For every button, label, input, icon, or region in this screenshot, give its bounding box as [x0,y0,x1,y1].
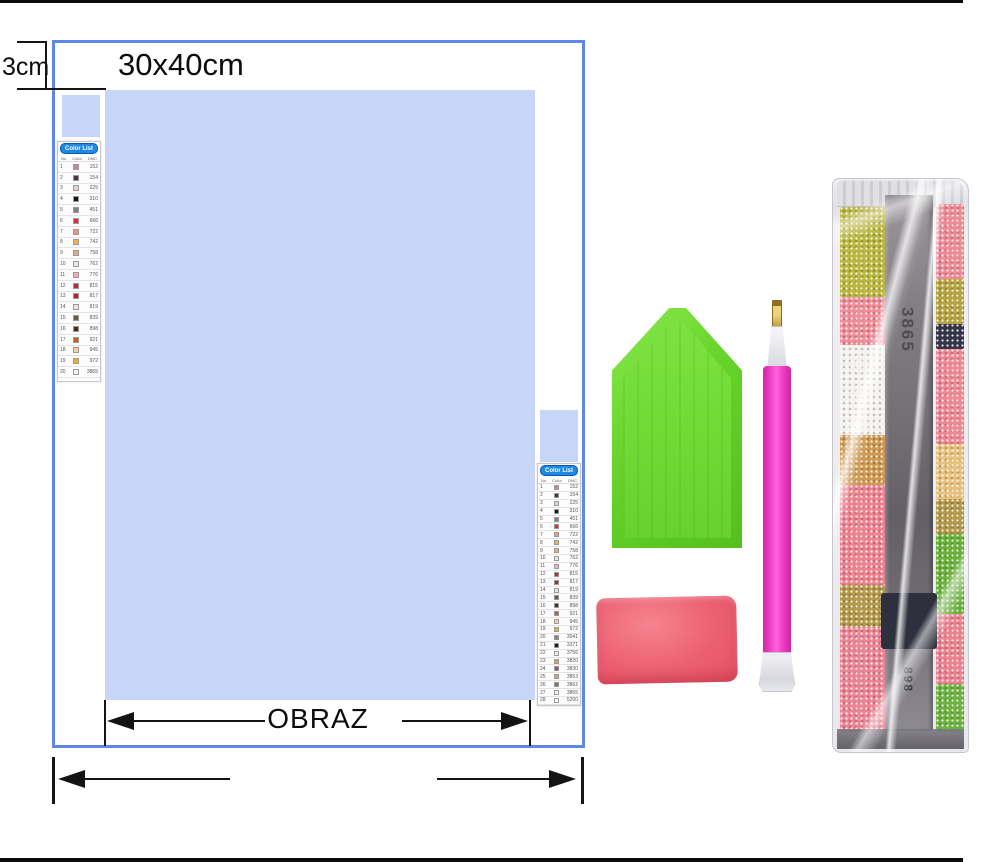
color-list-row: 4 310 [538,508,580,516]
canvas-corner-swatch-right [540,410,578,462]
color-swatch [554,603,559,608]
color-swatch [554,682,559,687]
color-list-row: 12 815 [58,281,100,292]
row-number: 1 [60,164,68,170]
bead-packet-pink [840,297,885,345]
color-swatch [73,239,79,245]
bead-packet-tan [840,435,885,485]
dmc-code: 666 [84,218,98,224]
color-list-rows: 1 152 2 154 3 225 4 [58,162,100,378]
dmc-code: 839 [564,595,578,601]
color-list-row: 1 152 [58,162,100,173]
bead-packet-olive [840,207,885,297]
bead-packet-pink [936,204,964,279]
row-number: 11 [60,272,68,278]
row-number: 15 [60,315,68,321]
color-list-row: 3 225 [538,500,580,508]
color-list-title: Color List [60,143,98,154]
dmc-code: 815 [564,571,578,577]
color-list-row: 17 921 [58,335,100,346]
color-list-row: 10 762 [538,555,580,563]
row-number: 2 [60,175,68,181]
row-number: 5 [540,516,548,522]
color-swatch [554,501,559,506]
row-number: 18 [60,347,68,353]
row-number: 19 [60,358,68,364]
dmc-code: 3371 [564,642,578,648]
color-list-row: 7 722 [538,531,580,539]
margin-size-label: 3cm [2,53,49,82]
color-swatch [554,548,559,553]
dmc-code: 742 [564,540,578,546]
color-swatch [554,690,559,695]
photo-frame-top-line [0,0,963,3]
row-number: 6 [60,218,68,224]
color-swatch [554,540,559,545]
color-list-column-headers: No Color DMC [538,477,580,484]
color-list-rows: 1 152 2 154 3 225 4 [538,484,580,705]
diamond-sorting-tray [612,308,742,548]
diamond-applicator-pen [754,300,800,692]
dmc-code: 3820 [564,658,578,664]
color-list-row: 12 815 [538,571,580,579]
color-list-row: 9 758 [58,248,100,259]
bead-packet-white [840,345,885,435]
arrow-right-icon [549,770,576,788]
measure-end-bar [52,757,55,804]
dmc-code: 758 [84,250,98,256]
row-number: 18 [540,619,548,625]
row-number: 16 [60,326,68,332]
color-list-row: 17 921 [538,610,580,618]
row-number: 28 [540,697,548,703]
canvas-size-label: 30x40cm [118,47,244,83]
color-swatch [554,493,559,498]
row-number: 6 [540,524,548,530]
color-swatch [73,358,79,364]
measure-end-bar [581,757,584,804]
color-swatch [554,674,559,679]
row-number: 7 [540,532,548,538]
diamond-beads-bag: 3865 898 [832,178,969,753]
color-list-row: 8 742 [58,238,100,249]
color-list-row: 11 776 [58,270,100,281]
bag-dark-fold [881,593,937,649]
row-number: 21 [540,642,548,648]
arrow-right-icon [501,712,528,730]
color-list-row: 9 758 [538,547,580,555]
color-swatch [73,272,79,278]
color-list-row: 27 3865 [538,689,580,697]
color-list-row: 15 839 [58,313,100,324]
color-list-column-headers: No Color DMC [58,155,100,162]
row-number: 3 [540,500,548,506]
color-swatch [554,524,559,529]
dmc-code: 3853 [564,674,578,680]
color-list-row: 2 154 [538,492,580,500]
dmc-code: 762 [84,261,98,267]
color-swatch [554,564,559,569]
color-swatch [73,261,79,267]
color-list-row: 5 451 [58,205,100,216]
dmc-code: 3041 [564,634,578,640]
row-number: 25 [540,674,548,680]
photo-frame-bottom-line [0,858,963,862]
dmc-code: 742 [84,239,98,245]
dmc-code: 722 [564,532,578,538]
dmc-code: 758 [564,548,578,554]
color-swatch [554,627,559,632]
row-number: 8 [60,239,68,245]
color-swatch [554,619,559,624]
color-swatch [554,517,559,522]
color-swatch [73,250,79,256]
dmc-code: 898 [84,326,98,332]
bead-packet-pink [936,349,964,444]
color-list-row: 24 3830 [538,665,580,673]
dmc-code: 972 [84,358,98,364]
color-list-row: 16 898 [58,324,100,335]
measure-end-bar [529,700,531,746]
margin-bracket-bottom-tick [17,88,106,90]
row-number: 13 [60,293,68,299]
bead-color-code-label: 3865 [897,307,917,353]
color-list-row: 10 762 [58,259,100,270]
color-swatch [554,651,559,656]
bead-packet-pink [840,627,885,732]
dmc-code: 819 [84,304,98,310]
color-list-row: 8 742 [538,539,580,547]
row-number: 24 [540,666,548,672]
bead-packet-olive [936,279,964,324]
dmc-code: 815 [84,283,98,289]
dmc-code: 451 [84,207,98,213]
color-swatch [554,580,559,585]
color-list-row: 22 3756 [538,650,580,658]
color-list-row: 16 898 [538,602,580,610]
col-color: Color [72,155,82,161]
color-list-row: 28 5200 [538,697,580,705]
dmc-code: 817 [564,579,578,585]
color-swatch [73,196,79,202]
pen-bottom-cap [759,652,795,692]
color-list-row: 19 972 [538,626,580,634]
color-swatch [73,164,79,170]
dmc-code: 3756 [564,650,578,656]
color-list-row: 2 154 [58,173,100,184]
row-number: 12 [60,283,68,289]
row-number: 4 [540,508,548,514]
color-list-row: 11 776 [538,563,580,571]
bead-color-code-label: 898 [901,667,915,693]
bead-packet-navy [936,324,964,349]
row-number: 10 [540,555,548,561]
row-number: 16 [540,603,548,609]
color-swatch [73,326,79,332]
bead-packet-green [936,534,964,614]
row-number: 14 [60,304,68,310]
color-list-row: 14 819 [538,587,580,595]
color-swatch [73,337,79,343]
row-number: 13 [540,579,548,585]
dmc-code: 3865 [84,369,98,375]
dmc-code: 839 [84,315,98,321]
color-swatch [554,643,559,648]
row-number: 26 [540,682,548,688]
measure-line [128,720,265,722]
row-number: 23 [540,658,548,664]
row-number: 10 [60,261,68,267]
dmc-code: 3862 [564,682,578,688]
row-number: 4 [60,196,68,202]
dmc-code: 3830 [564,666,578,672]
color-list-row: 19 972 [58,356,100,367]
dmc-code: 154 [84,175,98,181]
dmc-code: 225 [564,500,578,506]
measure-line [402,720,506,722]
color-swatch [73,229,79,235]
pen-metal-tip [772,300,782,328]
bag-center-fold-strip: 3865 898 [885,195,933,731]
color-swatch [554,485,559,490]
pen-clear-collar [766,326,788,368]
measure-line [80,778,230,780]
col-color: Color [552,477,562,483]
color-swatch [554,572,559,577]
dmc-code: 666 [564,524,578,530]
row-number: 17 [540,611,548,617]
color-list-row: 13 817 [538,579,580,587]
row-number: 22 [540,650,548,656]
row-number: 2 [540,492,548,498]
bead-packet-olive [936,499,964,534]
col-no: No [541,477,546,483]
bead-packet-pink [840,485,885,585]
color-swatch [554,698,559,703]
col-dmc: DMC [88,155,97,161]
color-list-row: 6 666 [538,523,580,531]
row-number: 8 [540,540,548,546]
color-list-row: 20 3865 [58,367,100,378]
row-number: 17 [60,337,68,343]
wax-pad [596,596,738,685]
dmc-code: 225 [84,185,98,191]
col-no: No [61,155,66,161]
color-swatch [554,611,559,616]
row-number: 9 [540,548,548,554]
color-list-row: 18 945 [538,618,580,626]
row-number: 15 [540,595,548,601]
color-list-strip-left: Color List No Color DMC 1 152 2 154 [57,141,101,382]
color-swatch [73,283,79,289]
color-swatch [73,347,79,353]
color-list-row: 18 945 [58,346,100,357]
color-swatch [73,293,79,299]
color-list-row: 3 225 [58,184,100,195]
bead-packet-green [936,684,964,732]
color-swatch [73,207,79,213]
color-swatch [554,588,559,593]
color-list-row: 1 152 [538,484,580,492]
color-swatch [554,666,559,671]
printed-picture-area [105,90,535,700]
margin-bracket-vertical-line [45,41,47,90]
dmc-code: 310 [84,196,98,202]
row-number: 19 [540,626,548,632]
dmc-code: 722 [84,229,98,235]
bead-packet-olive [840,585,885,627]
color-swatch [554,659,559,664]
row-number: 7 [60,229,68,235]
dmc-code: 310 [564,508,578,514]
dmc-code: 776 [564,563,578,569]
row-number: 14 [540,587,548,593]
canvas-corner-swatch-top [62,95,100,137]
dmc-code: 921 [564,611,578,617]
color-list-row: 15 839 [538,594,580,602]
color-swatch [73,175,79,181]
color-list-row: 7 722 [58,227,100,238]
row-number: 11 [540,563,548,569]
row-number: 20 [540,634,548,640]
color-list-row: 13 817 [58,292,100,303]
color-list-row: 25 3853 [538,673,580,681]
color-swatch [73,185,79,191]
dmc-code: 152 [84,164,98,170]
pen-body [763,366,791,656]
bag-bottom-seal [837,729,964,749]
color-list-row: 5 451 [538,516,580,524]
color-swatch [554,509,559,514]
measure-line [437,778,552,780]
row-number: 9 [60,250,68,256]
color-list-row: 14 819 [58,302,100,313]
dmc-code: 898 [564,603,578,609]
color-swatch [73,369,79,375]
dmc-code: 152 [564,484,578,490]
row-number: 1 [540,484,548,490]
dmc-code: 3865 [564,690,578,696]
bead-packet-peach [936,444,964,499]
color-swatch [554,635,559,640]
row-number: 3 [60,185,68,191]
color-list-title: Color List [540,465,578,476]
color-list-row: 20 3041 [538,634,580,642]
measure-end-bar [104,700,106,746]
picture-width-label: OBRAZ [263,703,373,735]
dmc-code: 945 [84,347,98,353]
color-swatch [73,315,79,321]
color-list-row: 4 310 [58,194,100,205]
dmc-code: 972 [564,626,578,632]
col-dmc: DMC [568,477,577,483]
dmc-code: 451 [564,516,578,522]
color-swatch [554,556,559,561]
dmc-code: 921 [84,337,98,343]
margin-bracket-top-tick [17,41,47,43]
color-list-row: 23 3820 [538,658,580,666]
row-number: 27 [540,690,548,696]
row-number: 12 [540,571,548,577]
row-number: 5 [60,207,68,213]
dmc-code: 762 [564,555,578,561]
color-list-row: 26 3862 [538,681,580,689]
color-swatch [554,532,559,537]
color-swatch [73,304,79,310]
bead-packet-pink [936,614,964,684]
dmc-code: 776 [84,272,98,278]
dmc-code: 945 [564,619,578,625]
dmc-code: 819 [564,587,578,593]
dmc-code: 817 [84,293,98,299]
color-swatch [73,218,79,224]
color-list-strip-right: Color List No Color DMC 1 152 2 154 [537,463,581,706]
row-number: 20 [60,369,68,375]
color-list-row: 6 666 [58,216,100,227]
color-list-row: 21 3371 [538,642,580,650]
color-swatch [554,595,559,600]
dmc-code: 5200 [564,697,578,703]
dmc-code: 154 [564,492,578,498]
